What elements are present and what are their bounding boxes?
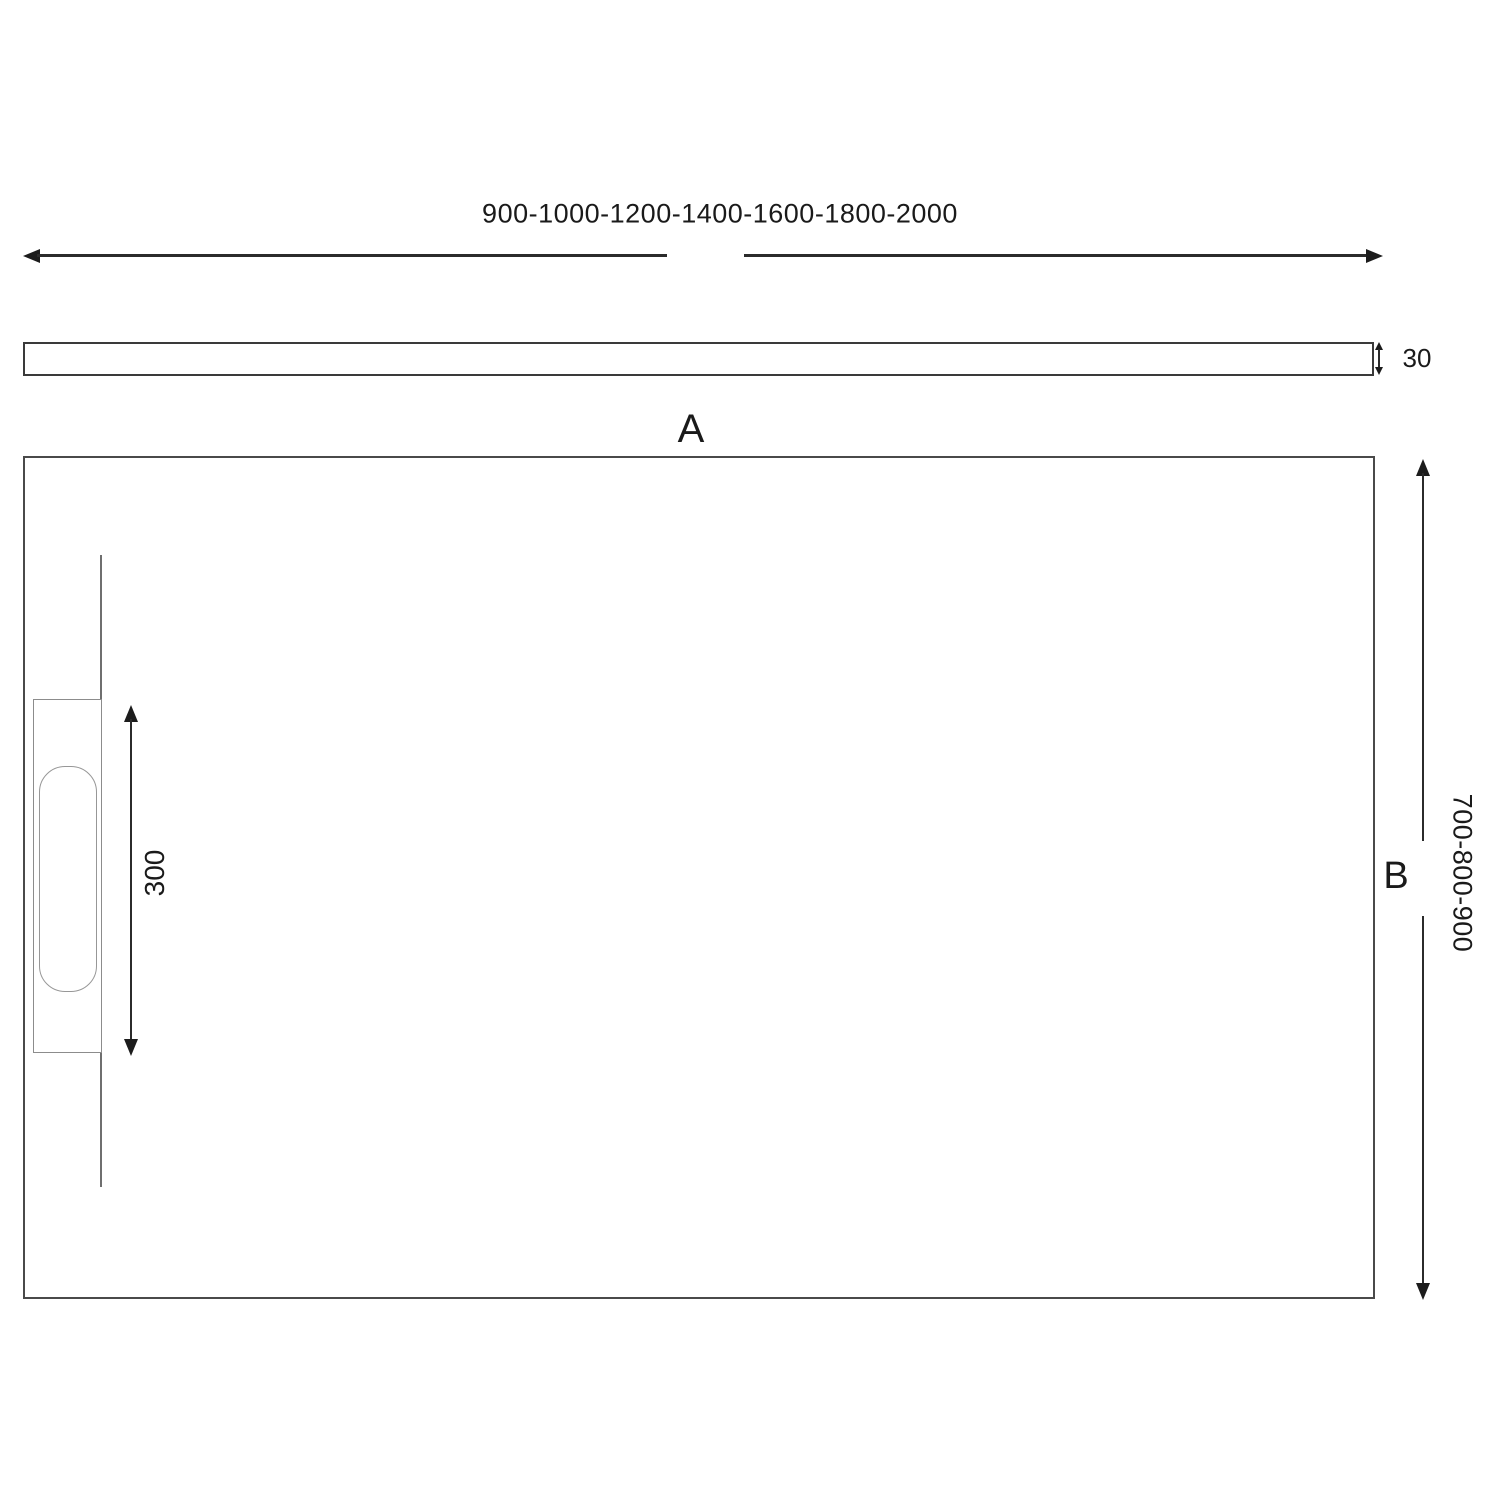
arrowhead-down-icon bbox=[1416, 1283, 1430, 1300]
tray-side-view bbox=[23, 342, 1374, 376]
depth-options-label: 700-800-900 bbox=[1449, 794, 1476, 953]
thickness-arrow-line bbox=[1378, 349, 1380, 369]
depth-arrow-lower-segment bbox=[1422, 916, 1424, 1284]
width-arrow-left-segment bbox=[37, 254, 667, 257]
drain-length-label: 300 bbox=[141, 850, 169, 897]
depth-letter-label-b: B bbox=[1383, 857, 1408, 895]
width-letter-label-a: A bbox=[678, 409, 705, 449]
arrowhead-right-icon bbox=[1366, 249, 1383, 263]
width-arrow-right-segment bbox=[744, 254, 1367, 257]
arrowhead-down-icon bbox=[124, 1039, 138, 1056]
technical-drawing-canvas: 900-1000-1200-1400-1600-1800-2000 30 A 3… bbox=[0, 0, 1500, 1500]
thickness-label: 30 bbox=[1403, 345, 1432, 371]
depth-arrow-upper-segment bbox=[1422, 473, 1424, 841]
width-options-label: 900-1000-1200-1400-1600-1800-2000 bbox=[482, 201, 958, 228]
drain-length-arrow-line bbox=[130, 719, 132, 1043]
tray-plan-view bbox=[23, 456, 1375, 1299]
arrowhead-down-icon bbox=[1375, 367, 1383, 375]
drain-cover-inner-outline bbox=[39, 766, 97, 992]
